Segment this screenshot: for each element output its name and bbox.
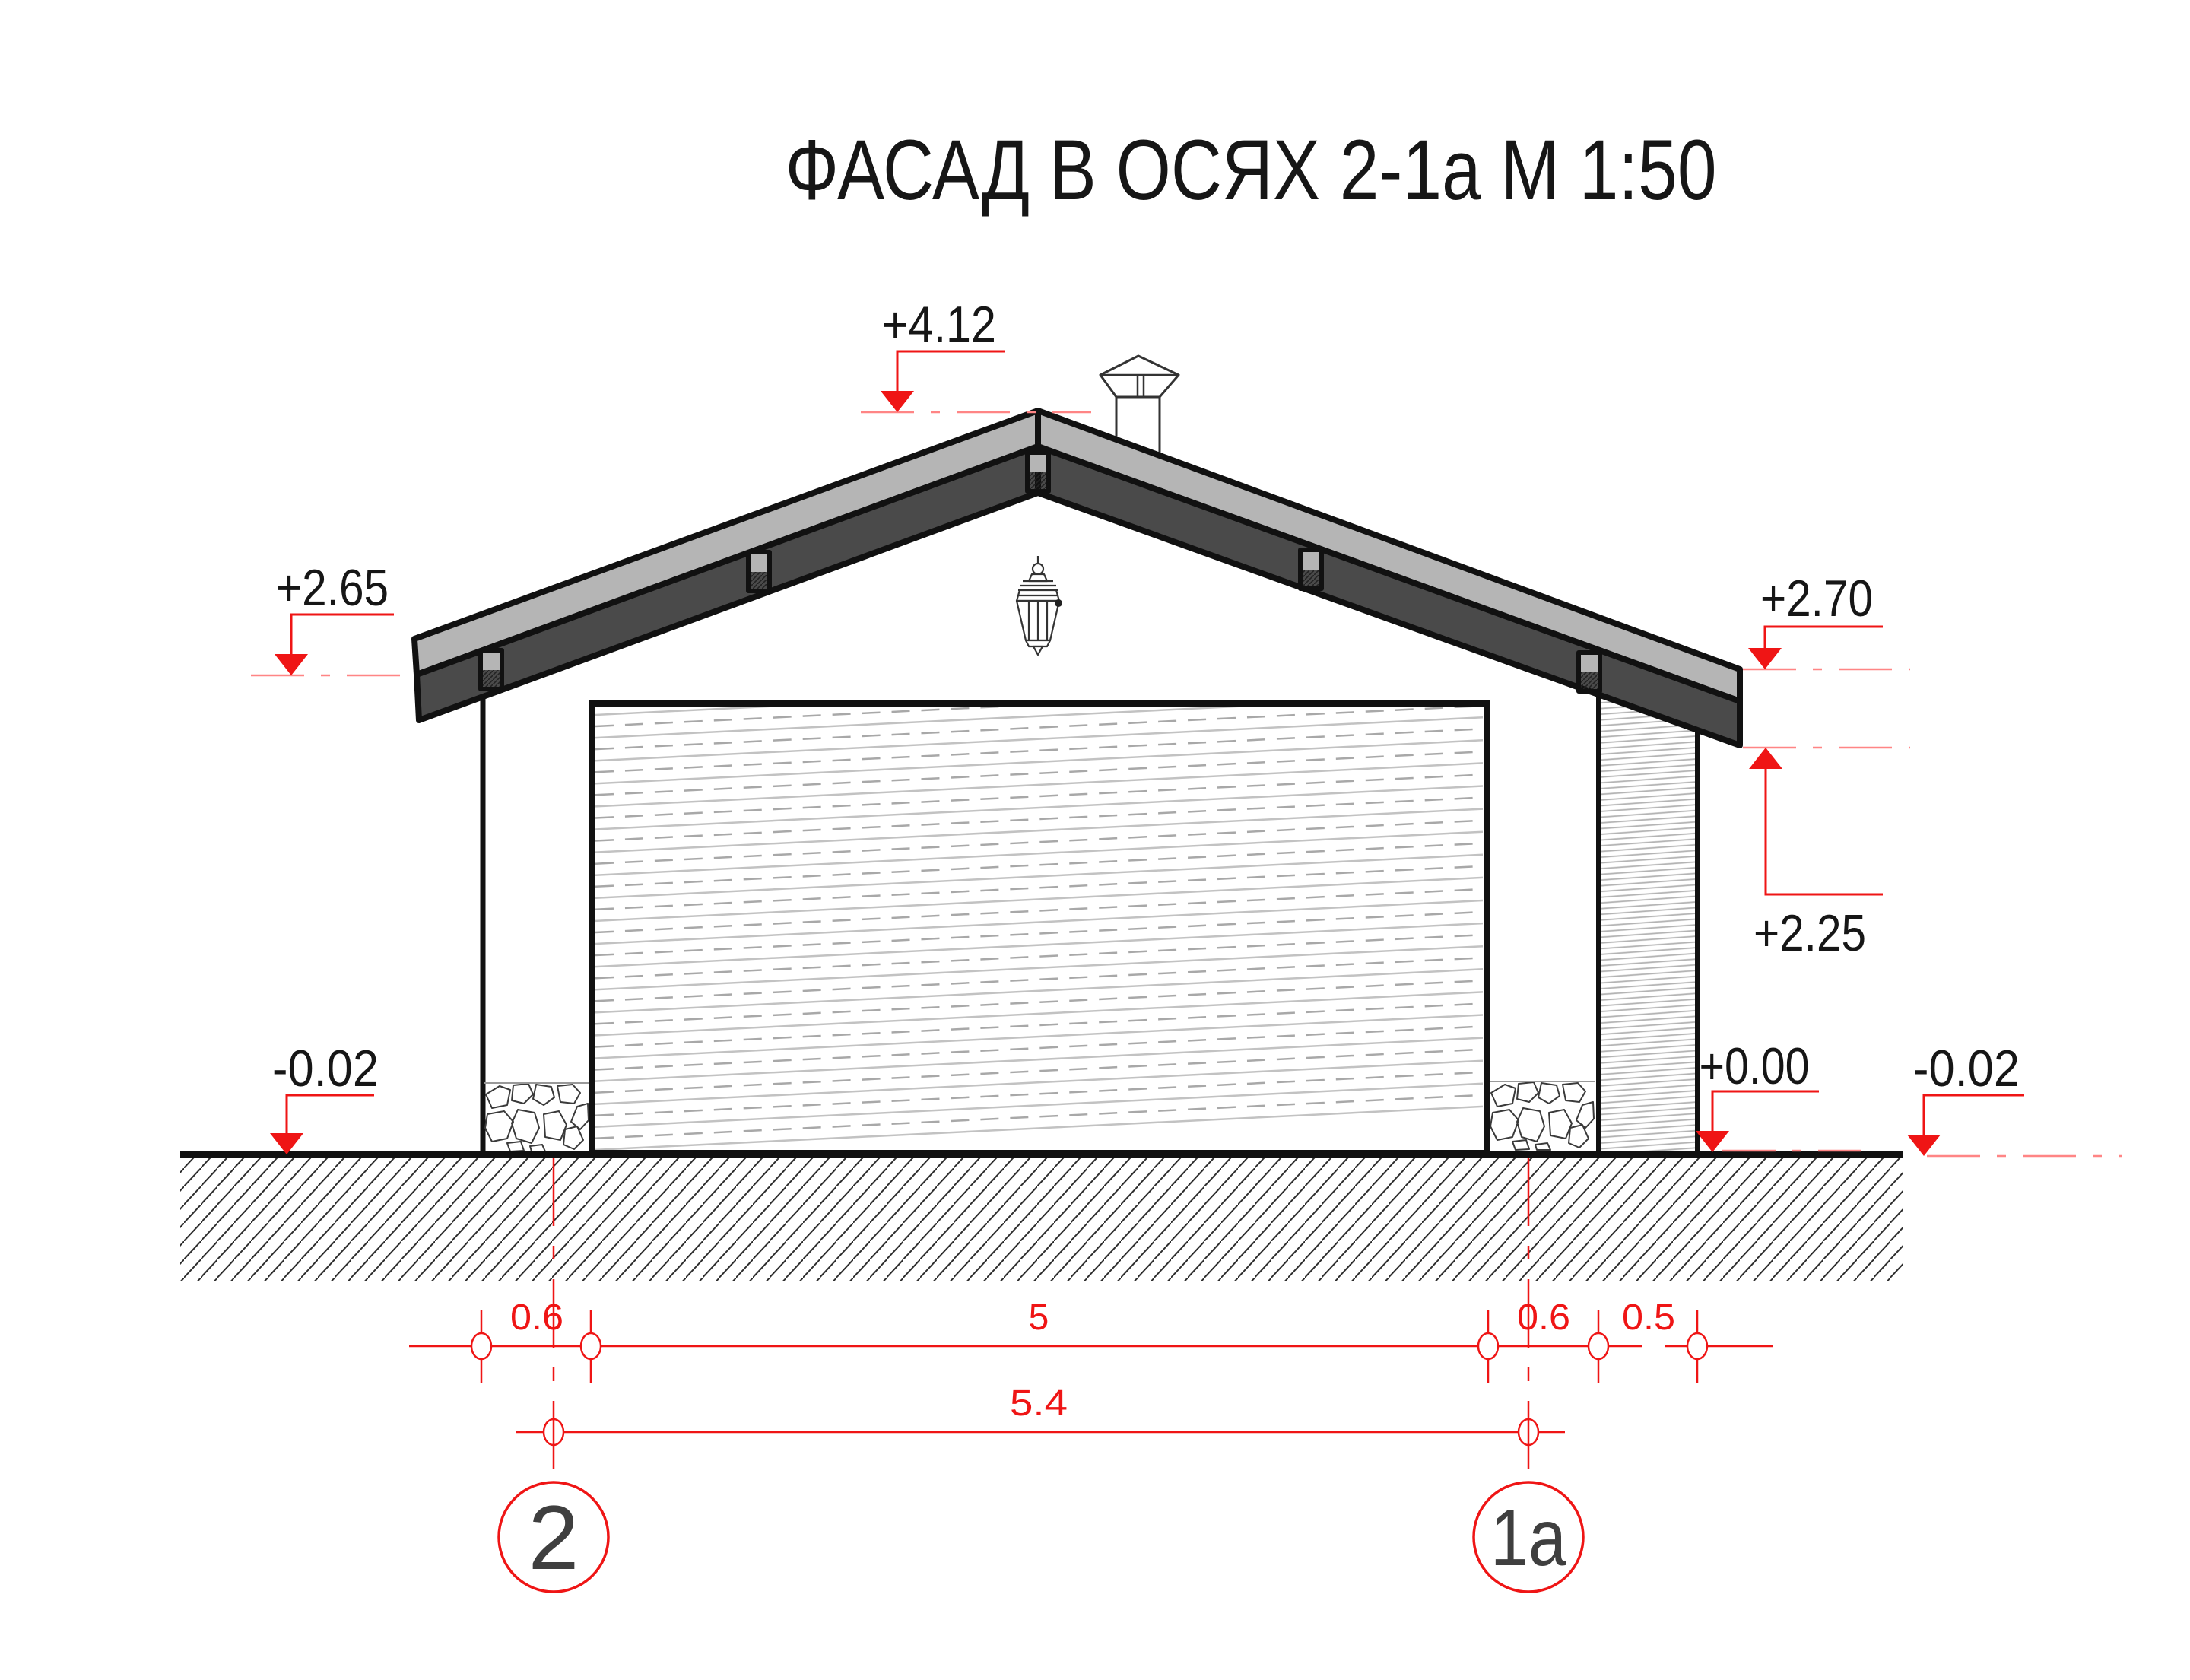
lantern-lamp <box>1017 556 1062 655</box>
level-roof-right-label: +2.70 <box>1760 570 1873 627</box>
level-leader <box>1766 769 1883 894</box>
level-arrow <box>1907 1135 1941 1156</box>
roof-slab-left <box>414 411 1038 675</box>
level-ground-left-label: -0.02 <box>272 1040 379 1097</box>
roof-slab-right <box>1038 411 1740 701</box>
axis-label-1a: 1а <box>1490 1493 1566 1583</box>
level-leader <box>1765 627 1883 648</box>
lamp-rim <box>1026 640 1050 646</box>
dim-corner-return: 0.5 <box>1622 1297 1675 1338</box>
level-eave-left-label: +2.65 <box>276 559 389 617</box>
level-leader <box>287 1095 374 1133</box>
dim-tick-circle <box>581 1333 601 1359</box>
level-arrow <box>275 654 308 675</box>
level-mark-ground-right: -0.02 <box>1907 1040 2122 1156</box>
ground <box>180 1154 1903 1281</box>
rafter-block <box>1027 453 1049 491</box>
level-arrow <box>1749 748 1782 769</box>
ground-hatch <box>180 1158 1903 1281</box>
dim-tick-circle <box>1478 1333 1498 1359</box>
level-mark-floor: +0.00 <box>1696 1037 1861 1152</box>
dim-pier-right: 0.6 <box>1517 1297 1570 1338</box>
garage-door <box>592 672 1487 1153</box>
level-arrow <box>1696 1131 1729 1152</box>
right-pier-wall <box>1487 654 1598 1153</box>
axis-label-2: 2 <box>528 1487 579 1589</box>
lamp-rings <box>1018 581 1058 590</box>
chimney-cap <box>1100 356 1179 397</box>
drawing-title: ФАСАД В ОСЯХ 2-1а М 1:50 <box>786 122 1717 218</box>
dim-overall: 5.4 <box>1010 1383 1068 1424</box>
lamp-neck <box>1029 574 1047 581</box>
level-ridge-label: +4.12 <box>882 296 996 354</box>
level-mark-eave-left: +2.65 <box>251 559 415 675</box>
lamp-shoulder <box>1017 590 1059 601</box>
dim-tick-circle <box>1589 1333 1608 1359</box>
lamp-knob <box>1033 564 1043 574</box>
level-mark-roof-right: +2.70 <box>1743 570 1910 669</box>
level-ground-right-label: -0.02 <box>1913 1040 2020 1097</box>
level-mark-soffit-right: +2.25 <box>1743 748 1910 962</box>
rafter-block <box>748 552 770 591</box>
roof-fascia-left <box>417 446 1038 720</box>
level-leader <box>1924 1095 2024 1135</box>
dim-door-span: 5 <box>1029 1297 1049 1338</box>
level-mark-ridge: +4.12 <box>861 296 1091 412</box>
level-arrow <box>881 391 914 412</box>
lamp-bracket-dot <box>1055 599 1062 607</box>
corner-return-wall <box>1598 694 1697 1153</box>
rafter-block <box>1300 550 1322 589</box>
level-soffit-right-label: +2.25 <box>1754 904 1866 962</box>
level-leader <box>1712 1091 1819 1131</box>
dimensions: 0.6 5 0.6 0.5 5.4 <box>409 1297 1773 1445</box>
dim-pier-left: 0.6 <box>510 1297 563 1338</box>
dim-tick-circle <box>1687 1333 1707 1359</box>
lamp-drop-tip <box>1033 646 1043 655</box>
rafter-block <box>1579 653 1600 691</box>
left-pier-wall <box>483 657 592 1153</box>
facade-drawing: +4.12 +2.65 +2.70 +2.25 -0.02 <box>0 0 2190 1680</box>
level-arrow <box>1748 648 1782 669</box>
drawing-sheet: +4.12 +2.65 +2.70 +2.25 -0.02 <box>0 0 2190 1680</box>
level-floor-label: +0.00 <box>1700 1037 1810 1095</box>
level-mark-ground-left: -0.02 <box>270 1040 379 1154</box>
level-leader <box>291 615 394 654</box>
rafter-block <box>481 650 502 689</box>
dim-tick-circle <box>471 1333 491 1359</box>
level-leader <box>897 351 1005 391</box>
